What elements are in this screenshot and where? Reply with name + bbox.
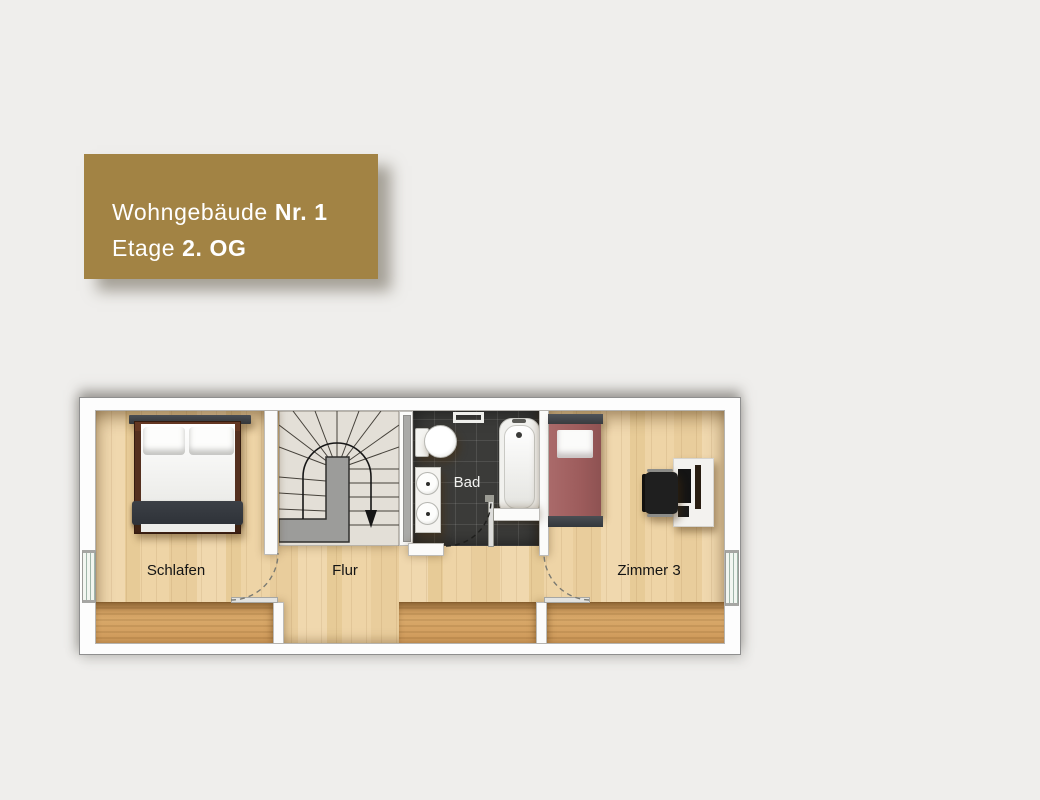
bath-shelf <box>453 412 484 423</box>
bathtub-fixture <box>512 419 526 423</box>
pillow-icon <box>189 427 234 455</box>
double-bed-sheet <box>141 524 235 532</box>
winder-staircase <box>279 411 399 546</box>
bathtub-faucet <box>516 432 522 438</box>
room-label-flur: Flur <box>315 562 375 579</box>
pillow-icon <box>143 427 185 455</box>
monitor-icon <box>678 469 691 503</box>
pillow-icon <box>557 430 593 458</box>
wall-stub-schlafen-flur <box>273 602 284 644</box>
door-schlafen <box>231 597 278 603</box>
page: { "title_card": { "line1": { "regular": … <box>0 0 1040 800</box>
window-right-icon <box>725 550 739 606</box>
wall-stub-flur-zimmer3 <box>536 602 547 644</box>
knee-wall-band-zimmer3 <box>547 602 725 644</box>
building-number: Nr. 1 <box>275 199 328 225</box>
floorplan-interior: Bad <box>95 410 725 644</box>
wall-tub-niche <box>493 508 540 521</box>
shaft-wall <box>399 411 413 546</box>
door-bad-handle <box>485 495 494 502</box>
door-bad <box>488 500 494 547</box>
double-bed-blanket <box>132 501 243 525</box>
wall-bad-zimmer3 <box>539 410 549 556</box>
toilet-icon <box>424 425 457 458</box>
desk-accessory <box>695 465 701 509</box>
single-bed-headboard <box>548 414 603 424</box>
sink-icon <box>416 502 439 525</box>
floorplan: Bad <box>79 397 741 655</box>
single-bed-footboard <box>548 516 603 527</box>
room-bad: Bad <box>413 411 539 546</box>
room-label-schlafen: Schlafen <box>126 562 226 579</box>
room-label-bad: Bad <box>437 474 497 491</box>
title-card: WohngebäudeNr. 1 Etage2. OG <box>84 154 378 279</box>
desk-accessory <box>678 506 689 517</box>
shaft-duct <box>403 415 411 542</box>
floor-label: Etage <box>112 235 175 261</box>
wall-bad-bottom <box>408 543 444 556</box>
bathtub-icon <box>499 418 540 516</box>
knee-wall-band-flur <box>399 602 536 644</box>
title-line-floor: Etage2. OG <box>112 230 378 266</box>
sink-icon <box>416 472 439 495</box>
office-chair-icon <box>645 472 678 514</box>
window-left-icon <box>82 550 96 603</box>
room-label-zimmer3: Zimmer 3 <box>607 562 691 579</box>
knee-wall-band-schlafen <box>96 602 273 644</box>
wall-schlafen-flur <box>264 410 278 555</box>
floor-number: 2. OG <box>182 235 246 261</box>
title-line-building: WohngebäudeNr. 1 <box>112 194 378 230</box>
door-zimmer3 <box>544 597 590 603</box>
building-label: Wohngebäude <box>112 199 268 225</box>
